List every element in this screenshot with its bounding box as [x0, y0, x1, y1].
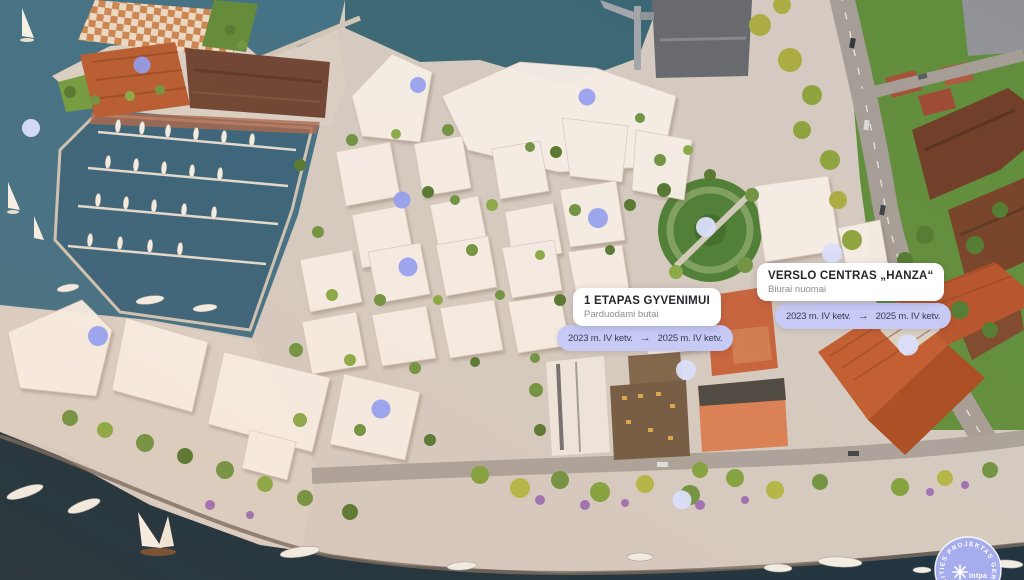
- tooltip-etapas-1[interactable]: 1 ETAPAS GYVENIMUI Parduodami butai: [573, 288, 721, 326]
- arrow-right-icon: →: [640, 332, 651, 344]
- tooltip-title: 1 ETAPAS GYVENIMUI: [584, 295, 710, 307]
- intpa-flower-icon: [953, 565, 967, 579]
- map-marker[interactable]: [410, 77, 426, 93]
- map-marker[interactable]: [394, 192, 411, 209]
- map-marker[interactable]: [588, 208, 608, 228]
- map-marker[interactable]: [822, 243, 842, 263]
- map-marker[interactable]: [134, 57, 151, 74]
- tooltip-dates-hanza: 2023 m. IV ketv. → 2025 m. IV ketv.: [775, 303, 951, 329]
- tooltip-subtitle: Parduodami butai: [584, 309, 710, 320]
- date-to: 2025 m. IV ketv.: [658, 333, 723, 344]
- map-marker[interactable]: [399, 258, 418, 277]
- map-marker[interactable]: [579, 89, 596, 106]
- award-badge[interactable]: ATEITIES PROJEKTAS GERIAUSIAS Intpa: [924, 532, 1012, 580]
- map-marker[interactable]: [676, 360, 696, 380]
- map-marker[interactable]: [673, 491, 692, 510]
- date-from: 2023 m. IV ketv.: [568, 333, 633, 344]
- tooltip-hanza[interactable]: VERSLO CENTRAS „HANZA“ Biurai nuomai: [757, 263, 944, 301]
- date-from: 2023 m. IV ketv.: [786, 311, 851, 322]
- tooltip-subtitle: Biurai nuomai: [768, 284, 933, 295]
- tooltip-dates-etapas-1: 2023 m. IV ketv. → 2025 m. IV ketv.: [557, 325, 733, 351]
- badge-brand-text: Intpa: [969, 573, 987, 580]
- map-marker[interactable]: [898, 335, 919, 356]
- map-marker[interactable]: [696, 217, 716, 237]
- date-to: 2025 m. IV ketv.: [876, 311, 941, 322]
- map-marker[interactable]: [22, 119, 40, 137]
- masterplan-viewer: 1 ETAPAS GYVENIMUI Parduodami butai 2023…: [0, 0, 1024, 580]
- arrow-right-icon: →: [858, 310, 869, 322]
- map-marker[interactable]: [372, 400, 391, 419]
- tooltip-title: VERSLO CENTRAS „HANZA“: [768, 270, 933, 282]
- map-marker[interactable]: [88, 326, 108, 346]
